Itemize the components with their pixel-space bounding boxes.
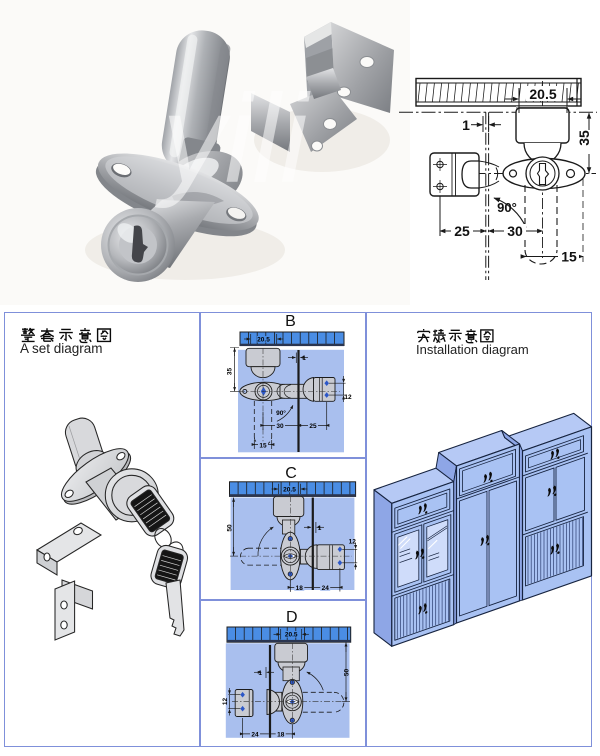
svg-text:1: 1 bbox=[318, 525, 322, 532]
svg-text:30: 30 bbox=[507, 223, 523, 239]
svg-text:1: 1 bbox=[258, 670, 262, 677]
svg-text:35: 35 bbox=[576, 130, 592, 146]
svg-text:18: 18 bbox=[277, 732, 285, 739]
svg-text:D: D bbox=[286, 609, 298, 626]
svg-text:A set diagram: A set diagram bbox=[20, 341, 103, 356]
svg-text:B: B bbox=[285, 313, 296, 330]
svg-text:18: 18 bbox=[296, 585, 304, 592]
svg-text:24: 24 bbox=[251, 732, 259, 739]
svg-text:90°: 90° bbox=[497, 200, 517, 215]
svg-text:15: 15 bbox=[259, 442, 267, 449]
svg-text:15: 15 bbox=[561, 249, 577, 265]
svg-text:20.5: 20.5 bbox=[283, 486, 296, 493]
svg-text:C: C bbox=[285, 465, 297, 482]
svg-text:12: 12 bbox=[349, 538, 357, 545]
svg-text:20.5: 20.5 bbox=[529, 86, 556, 102]
svg-text:12: 12 bbox=[222, 698, 229, 706]
svg-text:50: 50 bbox=[343, 669, 350, 677]
svg-text:Installation diagram: Installation diagram bbox=[416, 342, 529, 357]
svg-text:25: 25 bbox=[454, 223, 470, 239]
svg-text:30: 30 bbox=[276, 423, 284, 430]
svg-text:24: 24 bbox=[322, 585, 330, 592]
svg-text:25: 25 bbox=[309, 423, 317, 430]
svg-text:20.5: 20.5 bbox=[257, 337, 270, 344]
svg-text:20.5: 20.5 bbox=[285, 632, 298, 639]
svg-text:1: 1 bbox=[302, 355, 306, 362]
svg-text:1: 1 bbox=[462, 117, 470, 133]
svg-text:50: 50 bbox=[227, 524, 234, 532]
svg-text:12: 12 bbox=[344, 394, 352, 401]
svg-text:90°: 90° bbox=[276, 409, 286, 417]
svg-text:yili: yili bbox=[154, 70, 311, 209]
svg-text:35: 35 bbox=[227, 368, 234, 376]
